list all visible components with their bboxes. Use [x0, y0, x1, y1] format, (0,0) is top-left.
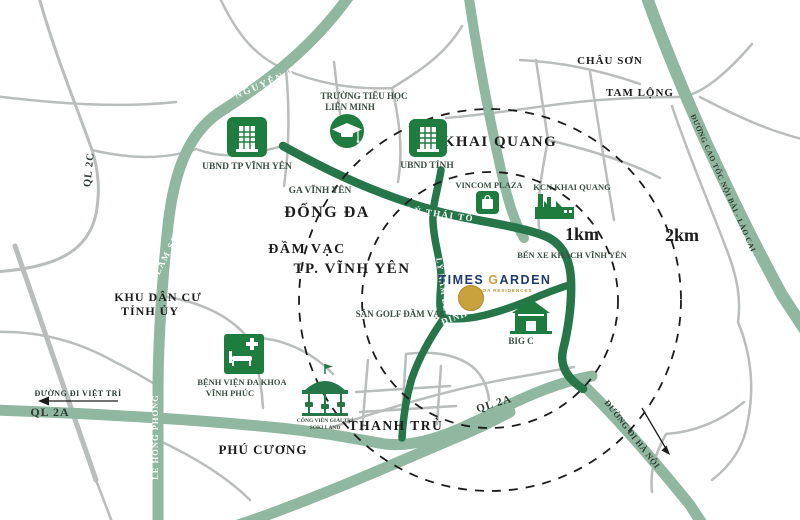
area-thanh-tru: THANH TRÙ — [349, 418, 444, 433]
poi-label-ga-vinh-yen: GA VĨNH YÊN — [289, 184, 352, 196]
area-phu-cuong: PHÚ CƯƠNG — [218, 442, 307, 457]
poi-label-cong-vien-line1: CÔNG VIÊN GIẢI TRÍ — [297, 416, 354, 424]
poi-label-school-line2: LIÊN MINH — [325, 102, 375, 112]
poi-label-ubnd-tp: UBND TP VĨNH YÊN — [202, 160, 292, 172]
project-name: TIMESGARDEN — [439, 273, 552, 287]
poi-label-benh-vien-line2: VĨNH PHÚC — [206, 388, 254, 398]
poi-label-cong-vien-line2: SOKI LAND — [310, 425, 341, 431]
area-tam-long: TAM LỘNG — [606, 86, 674, 99]
secondary-roads — [0, 0, 800, 520]
area-dong-da: ĐỐNG ĐA — [284, 201, 370, 221]
poi-label-school-line1: TRƯỜNG TIỂU HỌC — [320, 91, 407, 101]
direction-ha-noi-label: ĐƯỜNG ĐI HÀ NỘI — [602, 398, 662, 471]
poi-label-big-c: BIG C — [508, 336, 533, 346]
direction-viet-tri: ĐƯỜNG ĐI VIỆT TRÌ — [34, 388, 121, 406]
poi-cong-vien-giai-tri: CÔNG VIÊN GIẢI TRÍ SOKI LAND — [297, 364, 354, 431]
area-khai-quang: KHAI QUANG — [443, 134, 558, 150]
area-dam-vac: ĐẦM VẠC — [268, 240, 346, 257]
area-chau-son: CHÂU SƠN — [577, 55, 643, 67]
area-tp-vinh-yen: TP. VĨNH YÊN — [293, 259, 410, 277]
direction-viet-tri-label: ĐƯỜNG ĐI VIỆT TRÌ — [34, 388, 121, 398]
road-label-ql2a-left: QL 2A — [30, 405, 69, 419]
radius-1km-label: 1km — [565, 224, 599, 244]
arrow-head-southeast-icon — [662, 446, 671, 456]
poi-ubnd-tp-vinh-yen: UBND TP VĨNH YÊN — [202, 117, 292, 172]
road-label-ql2c: QL 2C — [82, 152, 97, 188]
road-label-le-hong-phong: LÊ HỒNG PHONG — [150, 394, 160, 480]
poi-label-ben-xe: BẾN XE KHÁCH VĨNH YÊN — [517, 250, 627, 260]
poi-benh-vien: BỆNH VIỆN ĐA KHOA VĨNH PHÚC — [197, 334, 287, 398]
project-location-dot — [459, 286, 484, 311]
poi-label-benh-vien-line1: BỆNH VIỆN ĐA KHOA — [197, 377, 287, 387]
road-expressway — [645, 0, 800, 330]
map-canvas: 1km 2km NGUYỄN TẤT THÀNH QL 2C LAM SƠN L… — [0, 0, 800, 520]
factory-icon — [538, 194, 543, 208]
poi-label-vincom: VINCOM PLAZA — [455, 180, 523, 190]
arrow-line-southeast — [642, 408, 665, 447]
direction-ha-noi: ĐƯỜNG ĐI HÀ NỘI — [602, 398, 670, 471]
road-label-ly-thai-to: LÝ THÁI TỔ — [406, 204, 474, 223]
poi-truong-tieu-hoc-lien-minh: TRƯỜNG TIỂU HỌC LIÊN MINH — [320, 91, 407, 148]
area-khu-dan-cu-line2: TỈNH ỦY — [121, 304, 179, 318]
poi-label-ubnd-tinh: UBND TỈNH — [400, 159, 454, 171]
poi-ubnd-tinh: UBND TỈNH — [400, 119, 454, 171]
road-ql2c-line — [0, 0, 98, 272]
poi-label-kcn: KCN KHAI QUANG — [533, 182, 611, 192]
location-map: 1km 2km NGUYỄN TẤT THÀNH QL 2C LAM SƠN L… — [0, 0, 800, 520]
radius-2km-label: 2km — [665, 225, 699, 245]
area-khu-dan-cu-line1: KHU DÂN CƯ — [114, 290, 202, 304]
poi-label-san-golf: SÂN GOLF ĐẦM VẠC — [356, 309, 447, 319]
poi-kcn-khai-quang: KCN KHAI QUANG — [533, 182, 611, 219]
